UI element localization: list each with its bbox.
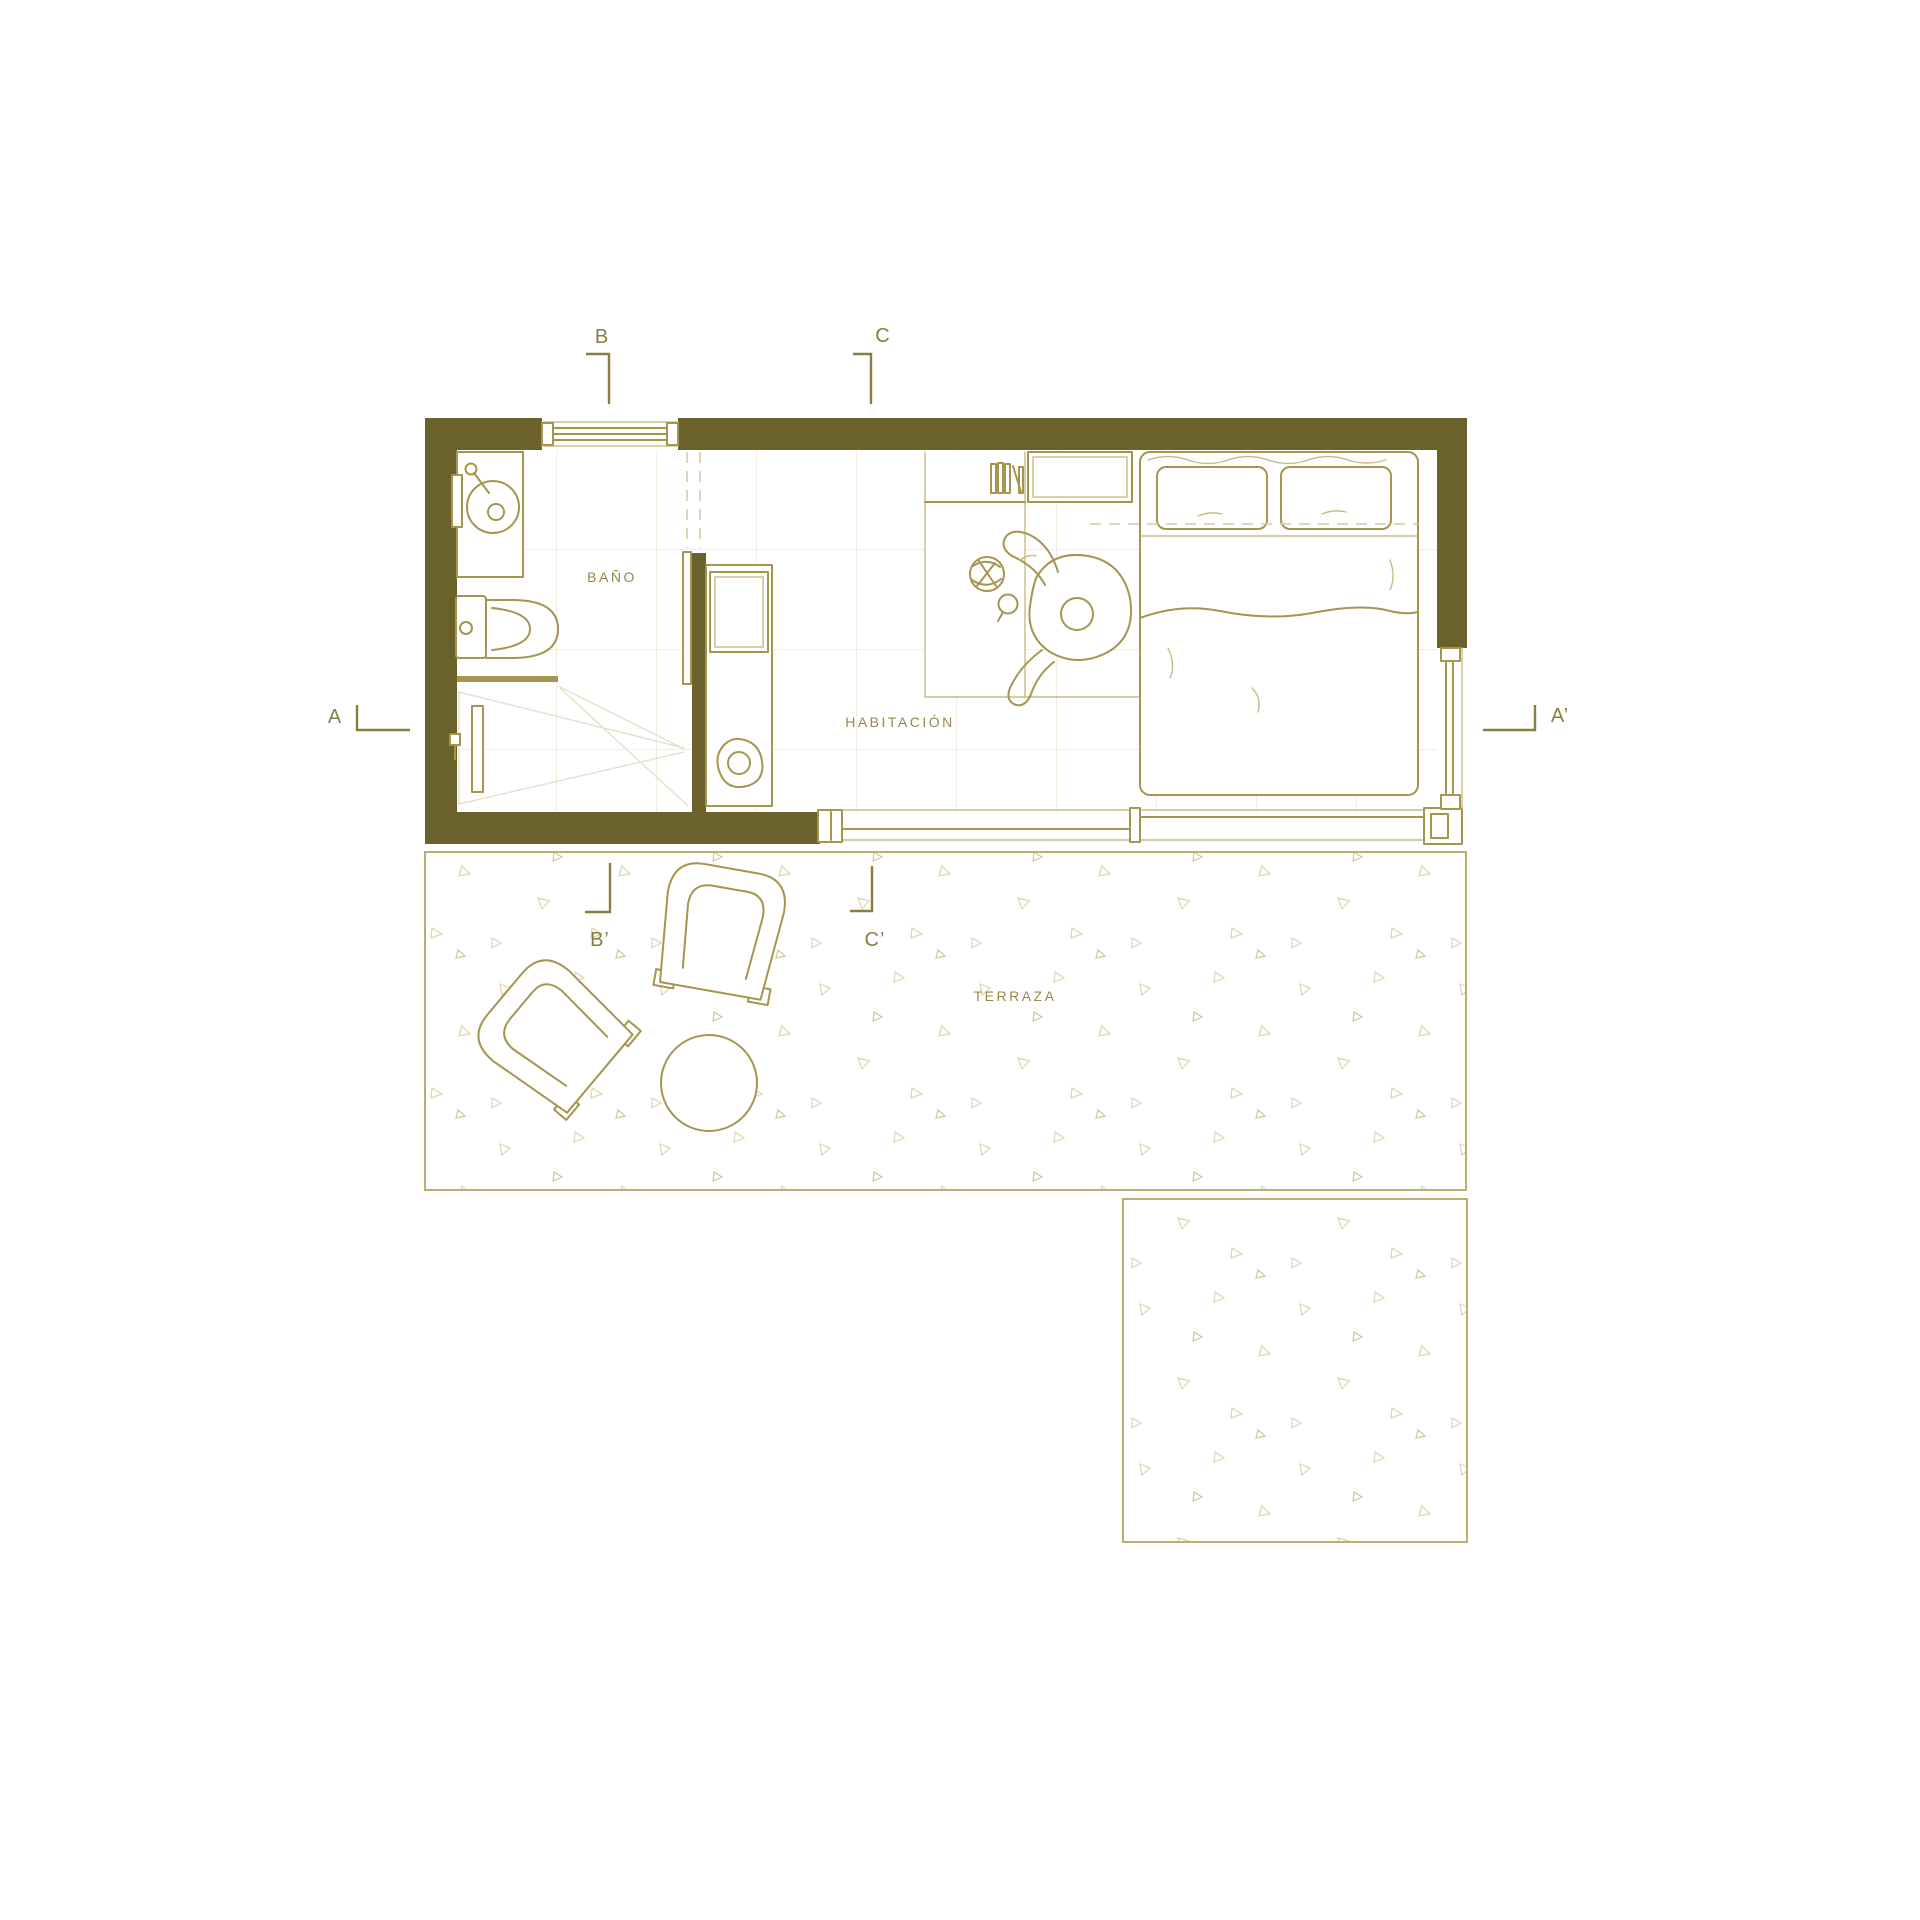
label-terrace: TERRAZA xyxy=(974,988,1057,1004)
svg-text:B’: B’ xyxy=(590,929,610,951)
laundry-cabinet xyxy=(706,565,772,806)
svg-text:A’: A’ xyxy=(1551,705,1569,727)
coffee-table xyxy=(661,1035,757,1131)
section-marker-b: B xyxy=(586,326,609,404)
sink-vanity xyxy=(452,452,523,577)
floor-plan: TERRAZA xyxy=(0,0,1920,1920)
toilet xyxy=(456,596,558,658)
window-right xyxy=(1441,648,1462,809)
terrace-lower xyxy=(1123,1199,1467,1542)
sliding-door xyxy=(818,808,1462,844)
label-bathroom: BAÑO xyxy=(587,569,637,585)
section-marker-a-prime: A’ xyxy=(1483,705,1569,730)
window-top xyxy=(542,422,678,446)
label-bedroom: HABITACIÓN xyxy=(845,714,955,730)
bed xyxy=(1090,452,1418,795)
section-marker-c: C xyxy=(853,325,891,404)
pillow xyxy=(1157,467,1267,529)
floor-plan-svg: TERRAZA xyxy=(0,0,1920,1920)
svg-text:B: B xyxy=(595,326,609,348)
pillow xyxy=(1281,467,1391,529)
svg-text:C: C xyxy=(875,325,890,347)
svg-text:C’: C’ xyxy=(865,929,886,951)
section-marker-a: A xyxy=(328,705,410,730)
wardrobe xyxy=(1028,452,1132,502)
svg-text:A: A xyxy=(328,706,342,728)
